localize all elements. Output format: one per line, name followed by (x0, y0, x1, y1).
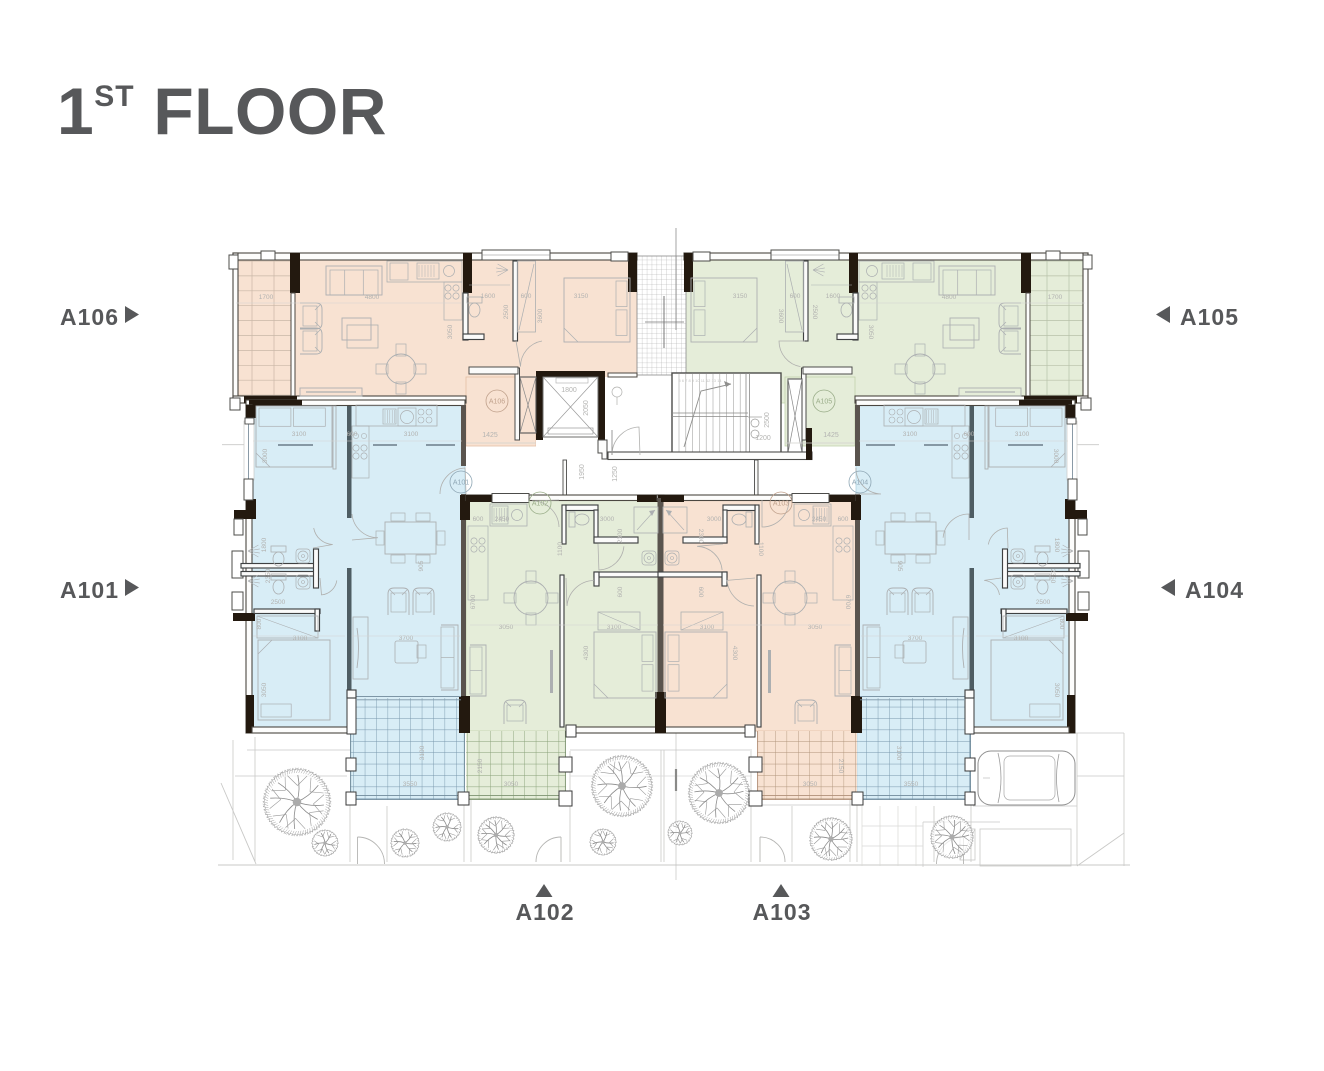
svg-text:800: 800 (256, 618, 263, 629)
svg-text:600: 600 (473, 516, 484, 523)
svg-text:3000: 3000 (1052, 449, 1059, 464)
svg-text:2300: 2300 (697, 529, 704, 544)
svg-text:A102: A102 (516, 899, 575, 925)
svg-text:5 6 7 8 9 10 11 12 13 14: 5 6 7 8 9 10 11 12 13 14 (678, 378, 722, 383)
svg-text:1425: 1425 (482, 432, 498, 439)
svg-text:3050: 3050 (1053, 683, 1060, 698)
svg-text:1800: 1800 (561, 387, 577, 394)
svg-text:905: 905 (896, 561, 903, 572)
svg-text:3550: 3550 (403, 781, 418, 788)
svg-text:2450: 2450 (812, 516, 827, 523)
svg-text:3050: 3050 (867, 325, 874, 340)
svg-text:1600: 1600 (826, 293, 841, 300)
svg-text:1950: 1950 (579, 464, 586, 480)
svg-text:600: 600 (617, 586, 624, 597)
svg-text:600: 600 (790, 293, 801, 300)
svg-text:3050: 3050 (504, 781, 519, 788)
svg-text:3000: 3000 (600, 516, 615, 523)
svg-text:6700: 6700 (470, 594, 477, 609)
svg-text:3100: 3100 (895, 746, 902, 761)
svg-text:A106: A106 (60, 304, 119, 330)
svg-text:3600: 3600 (777, 309, 784, 324)
svg-text:2150: 2150 (837, 759, 844, 774)
svg-text:3100: 3100 (1015, 431, 1030, 438)
svg-text:2050: 2050 (583, 400, 590, 416)
svg-text:1200: 1200 (755, 435, 771, 442)
svg-text:4800: 4800 (365, 294, 380, 301)
svg-text:2350: 2350 (1049, 569, 1056, 584)
svg-text:1425: 1425 (823, 432, 839, 439)
svg-text:3050: 3050 (261, 682, 268, 697)
svg-text:1600: 1600 (481, 293, 496, 300)
svg-text:600: 600 (697, 587, 704, 598)
svg-text:600: 600 (521, 293, 532, 300)
svg-text:3100: 3100 (292, 431, 307, 438)
svg-text:3000: 3000 (707, 516, 722, 523)
svg-text:4300: 4300 (583, 645, 590, 660)
svg-text:2500: 2500 (503, 304, 510, 319)
svg-text:A104: A104 (852, 480, 868, 487)
svg-text:1800: 1800 (1053, 538, 1060, 553)
svg-text:905: 905 (418, 560, 425, 571)
svg-text:3100: 3100 (419, 745, 426, 760)
svg-text:1700: 1700 (259, 294, 274, 301)
svg-text:1700: 1700 (1048, 294, 1063, 301)
svg-text:A103: A103 (773, 501, 789, 508)
svg-text:2300: 2300 (617, 528, 624, 543)
svg-text:3050: 3050 (447, 324, 454, 339)
svg-text:4300: 4300 (731, 646, 738, 661)
svg-text:A105: A105 (816, 399, 832, 406)
svg-text:A101: A101 (453, 480, 469, 487)
svg-text:A106: A106 (489, 399, 505, 406)
svg-text:1100: 1100 (757, 542, 764, 556)
svg-text:A102: A102 (532, 501, 548, 508)
svg-text:3150: 3150 (733, 293, 748, 300)
svg-text:3100: 3100 (903, 431, 918, 438)
svg-text:1250: 1250 (612, 466, 619, 482)
svg-text:2350: 2350 (265, 568, 272, 583)
svg-text:A104: A104 (1185, 577, 1244, 603)
svg-text:800: 800 (1058, 619, 1065, 630)
svg-text:A101: A101 (60, 577, 119, 603)
svg-text:6700: 6700 (844, 595, 851, 610)
svg-text:2500: 2500 (271, 599, 286, 606)
svg-text:600: 600 (964, 431, 975, 438)
svg-text:2450: 2450 (495, 516, 510, 523)
svg-text:1100: 1100 (557, 542, 564, 556)
svg-text:3550: 3550 (904, 781, 919, 788)
svg-text:3100: 3100 (404, 431, 419, 438)
svg-text:2500: 2500 (811, 305, 818, 320)
svg-text:A103: A103 (753, 899, 812, 925)
svg-text:3600: 3600 (537, 308, 544, 323)
svg-text:3150: 3150 (574, 293, 589, 300)
svg-text:1800: 1800 (261, 537, 268, 552)
svg-text:2150: 2150 (477, 758, 484, 773)
svg-text:A105: A105 (1180, 304, 1239, 330)
svg-text:3000: 3000 (262, 448, 269, 463)
svg-text:3050: 3050 (803, 781, 818, 788)
svg-text:600: 600 (347, 431, 358, 438)
svg-text:600: 600 (838, 516, 849, 523)
svg-text:4800: 4800 (942, 294, 957, 301)
svg-text:2500: 2500 (764, 412, 771, 428)
svg-text:2500: 2500 (1036, 599, 1051, 606)
